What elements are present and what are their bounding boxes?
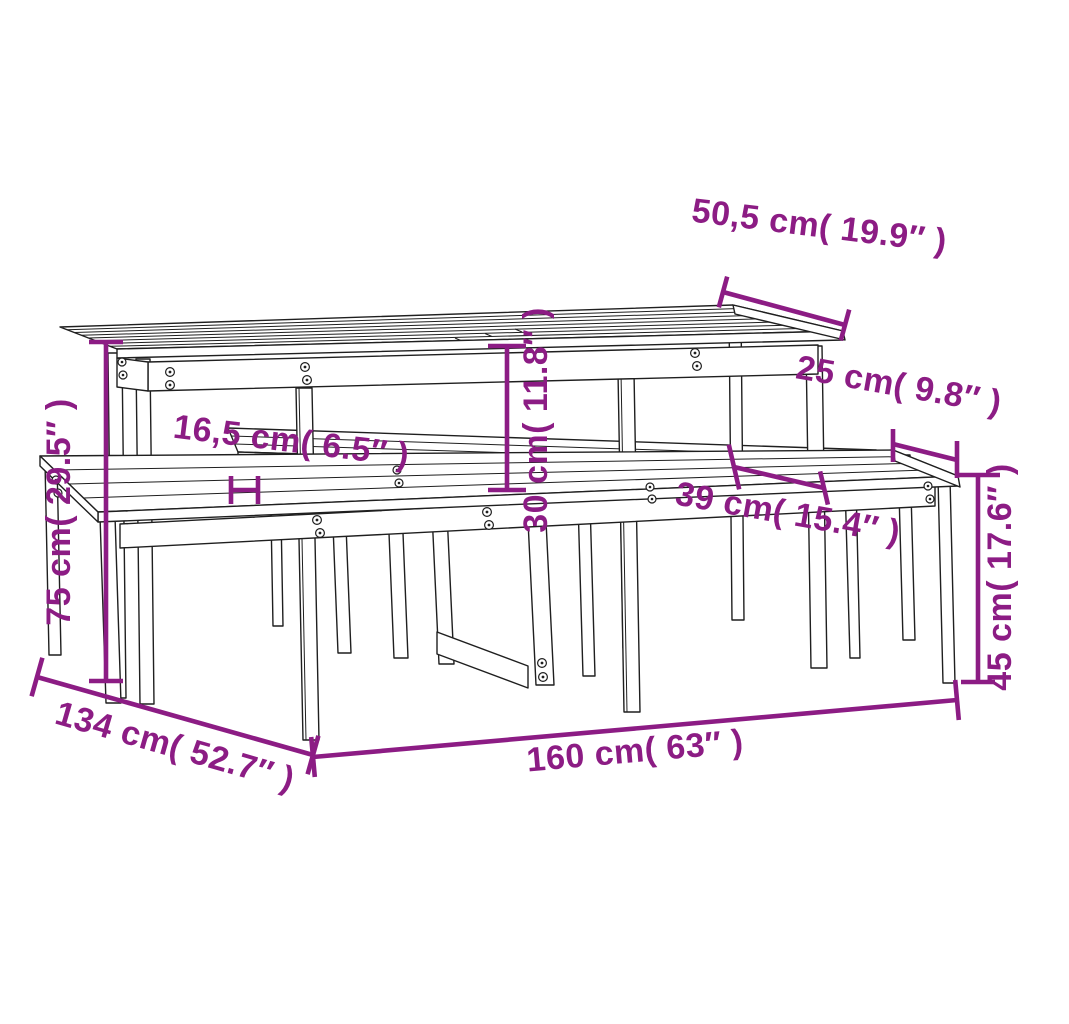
screw-icon xyxy=(691,349,700,358)
screw-icon xyxy=(395,479,403,487)
dimension-label: 75 cm( 29.5″ ) xyxy=(40,398,78,625)
screw-icon xyxy=(539,673,548,682)
product-dimension-image: 50,5 cm( 19.9″ ) 25 cm( 9.8″ ) 16,5 cm( … xyxy=(0,0,1069,1024)
screw-icon xyxy=(303,376,312,385)
screw-icon xyxy=(648,495,656,503)
screw-icon xyxy=(483,508,492,517)
screw-icon xyxy=(166,381,175,390)
screw-icon xyxy=(538,659,547,668)
screw-icon xyxy=(313,516,322,525)
dimension-label: 45 cm( 17.6″ ) xyxy=(981,463,1019,690)
dimension-label: 30 cm( 11.8″ ) xyxy=(517,307,555,533)
dimension-total-depth: 134 cm( 52.7″ ) xyxy=(32,658,319,799)
dimension-label: 134 cm( 52.7″ ) xyxy=(51,694,299,799)
table-leg xyxy=(618,372,640,712)
dimension-label: 50,5 cm( 19.9″ ) xyxy=(690,192,949,261)
bench-front-leg xyxy=(578,502,595,676)
screw-icon xyxy=(924,482,932,490)
bench-front-leg xyxy=(938,478,955,683)
dimension-bench-height: 45 cm( 17.6″ ) xyxy=(956,463,1019,690)
dimension-tick xyxy=(955,680,959,720)
screw-icon xyxy=(166,368,175,377)
dimension-label: 25 cm( 9.8″ ) xyxy=(793,348,1004,422)
screw-icon xyxy=(301,363,310,372)
screw-icon xyxy=(646,483,654,491)
picnic-table-dimension-diagram: 50,5 cm( 19.9″ ) 25 cm( 9.8″ ) 16,5 cm( … xyxy=(0,0,1069,1024)
screw-icon xyxy=(926,495,934,503)
screw-icon xyxy=(485,521,494,530)
screw-icon xyxy=(693,362,702,371)
dimension-label: 160 cm( 63″ ) xyxy=(525,723,745,780)
screw-icon xyxy=(119,371,127,379)
screw-icon xyxy=(316,529,325,538)
screw-icon xyxy=(118,358,126,366)
